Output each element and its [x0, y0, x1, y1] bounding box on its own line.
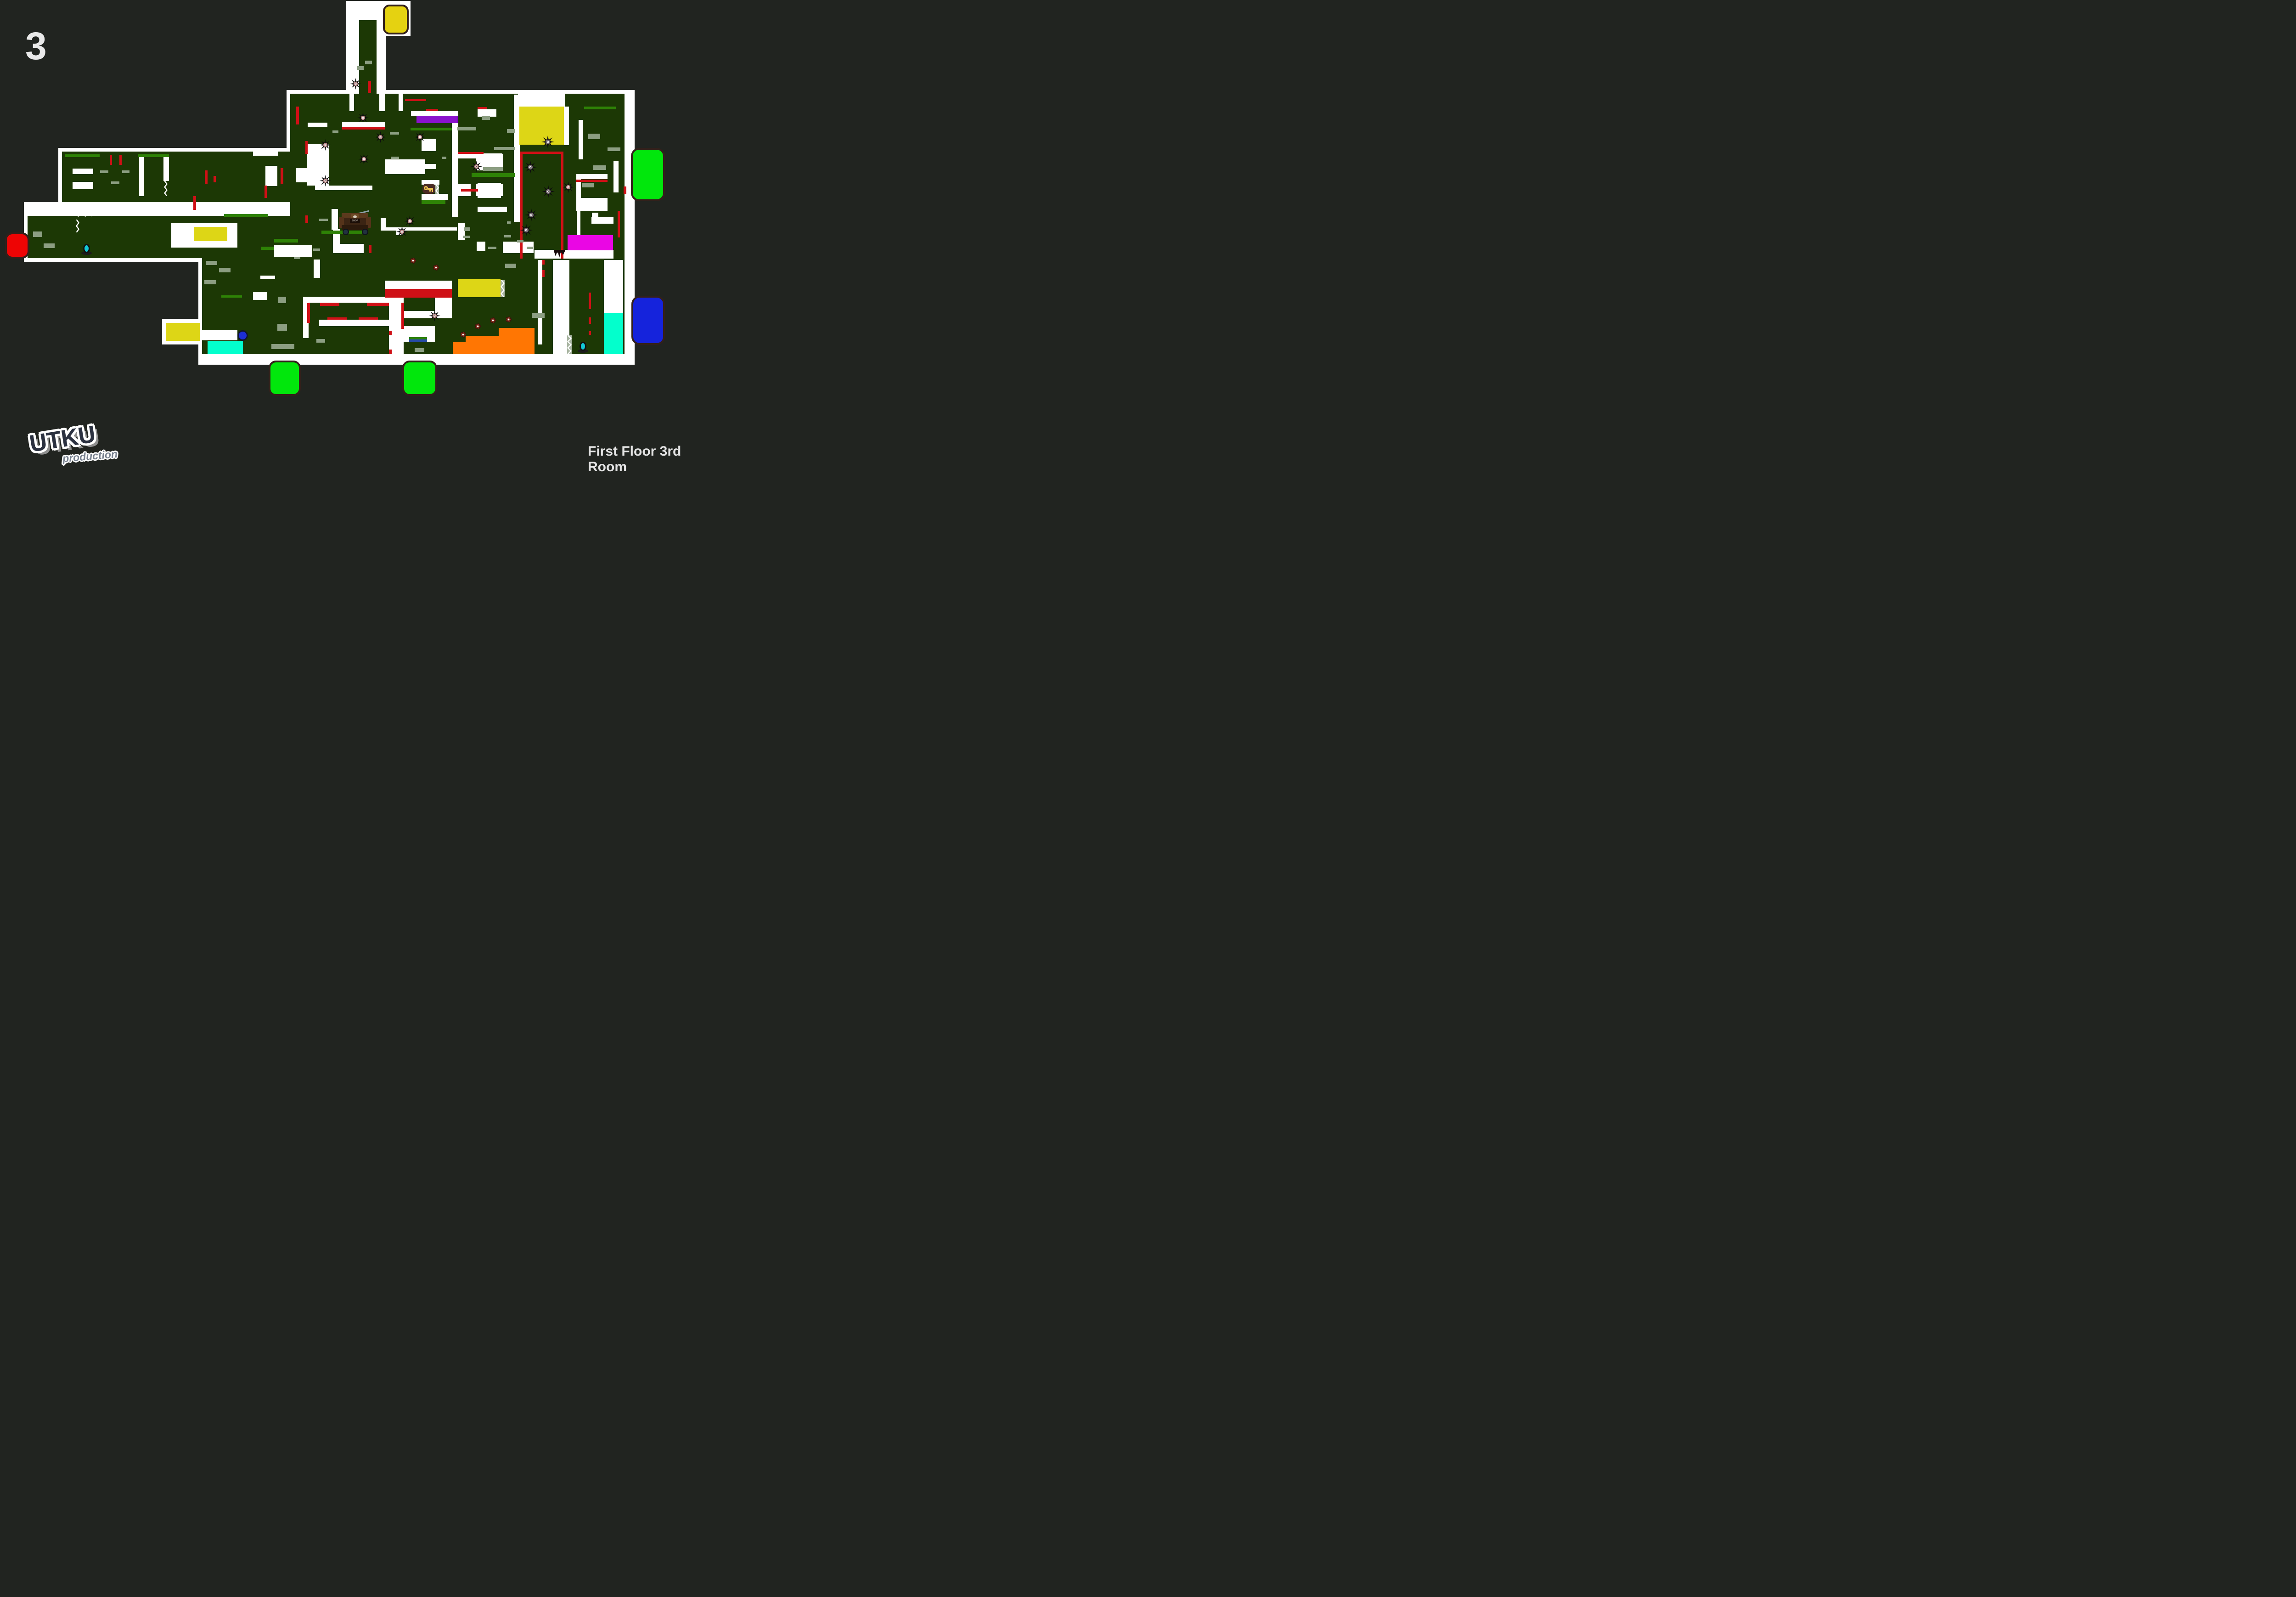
- hazard-mark: [193, 196, 196, 210]
- platform-dash: [504, 235, 511, 237]
- corridor-gap: [73, 169, 93, 174]
- splat-enemy-icon: [474, 323, 481, 330]
- hazard-mark: [205, 170, 208, 184]
- platform-dash: [111, 181, 119, 184]
- hazard-mark: [389, 350, 392, 354]
- hazard-mark: [520, 152, 563, 154]
- zigzag-spring-icon: [75, 211, 92, 215]
- platform-dash: [582, 183, 594, 187]
- grass-strip: [274, 239, 298, 243]
- corridor-gap: [576, 198, 608, 211]
- platform-dash: [517, 240, 523, 243]
- zigzag-spring-icon: [164, 181, 168, 196]
- hazard-mark: [542, 270, 545, 277]
- hazard-mark: [589, 317, 591, 324]
- corridor-gap: [435, 297, 452, 311]
- splat-enemy-icon: [410, 257, 416, 264]
- platform-dash: [442, 157, 446, 159]
- spike-enemy-pink-icon: [319, 139, 332, 151]
- screenshot-canvas: 3 SHOP UTKU production First Floor 3rd R…: [0, 0, 720, 489]
- door-red-left: [5, 232, 29, 259]
- platform-dash: [588, 134, 600, 139]
- platform-dash: [122, 170, 129, 173]
- hazard-mark: [305, 215, 308, 223]
- corridor-gap: [478, 207, 507, 212]
- corridor-gap: [399, 93, 403, 111]
- door-yellow-top: [383, 5, 409, 34]
- corridor-gap: [613, 161, 619, 192]
- hazard-mark: [401, 303, 404, 329]
- platform-dash: [507, 129, 515, 133]
- spike-enemy-pink-icon: [358, 153, 370, 165]
- platform-dash: [608, 147, 620, 151]
- corridor-gap: [535, 250, 613, 259]
- platform-dash: [593, 165, 606, 170]
- shop-sign-label: SHOP: [350, 219, 360, 223]
- platform-dash: [204, 280, 216, 284]
- magenta-pad: [568, 235, 613, 250]
- zigzag-spring-icon: [501, 280, 505, 297]
- corridor-gap: [576, 179, 581, 198]
- corridor-gap: [139, 155, 144, 196]
- corridor-gap: [314, 260, 320, 278]
- spike-enemy-gray-icon: [519, 223, 533, 237]
- grass-strip: [221, 295, 242, 298]
- yellow-pad-mid-right: [458, 279, 501, 297]
- hazard-mark: [458, 152, 484, 154]
- hazard-mark: [305, 141, 308, 154]
- platform-dash: [316, 339, 325, 343]
- grass-strip: [472, 173, 515, 177]
- studio-logo: UTKU production: [27, 422, 128, 477]
- grass-strip: [138, 154, 169, 157]
- hazard-mark: [576, 180, 608, 182]
- corridor-gap: [379, 93, 385, 111]
- hazard-mark: [385, 289, 452, 298]
- hazard-mark: [367, 303, 389, 306]
- splat-enemy-icon: [460, 331, 467, 338]
- corridor-gap: [319, 320, 389, 326]
- shop-stall-sprite: SHOP: [339, 213, 371, 232]
- platform-dash: [488, 247, 496, 249]
- purple-pad: [416, 116, 458, 123]
- spike-enemy-pink-icon: [414, 131, 426, 143]
- hazard-mark: [327, 317, 347, 320]
- hazard-mark: [359, 317, 378, 320]
- blue-orb-icon: [237, 330, 248, 341]
- splat-enemy-icon: [490, 317, 496, 324]
- platform-dash: [44, 243, 55, 248]
- hazard-mark: [426, 109, 438, 111]
- hazard-mark: [389, 331, 392, 335]
- platform-dash: [332, 130, 338, 133]
- platform-dash: [319, 219, 328, 221]
- level-map: SHOP: [0, 0, 720, 489]
- platform-dash: [505, 264, 516, 268]
- spike-enemy-pink-icon: [562, 181, 574, 193]
- corridor-gap: [478, 183, 501, 198]
- platform-dash: [457, 127, 476, 130]
- hazard-mark: [589, 293, 591, 309]
- corridor-gap: [308, 123, 327, 127]
- spike-enemy-pink-icon: [374, 131, 387, 143]
- corridor-gap: [253, 152, 278, 156]
- hazard-mark: [618, 211, 620, 237]
- platform-dash: [494, 147, 515, 150]
- corridor-gap: [265, 166, 277, 186]
- platform-dash: [294, 257, 300, 259]
- platform-dash: [219, 268, 231, 272]
- hazard-mark: [320, 303, 339, 306]
- platform-dash: [415, 348, 424, 352]
- corridor-gap: [411, 111, 458, 116]
- spike-enemy-gray-icon: [541, 135, 555, 149]
- corridor-gap: [309, 297, 389, 303]
- hazard-mark: [214, 176, 216, 182]
- platform-dash: [507, 221, 511, 224]
- hazard-mark: [342, 127, 385, 130]
- hazard-mark: [281, 168, 283, 184]
- platform-dash: [33, 231, 42, 237]
- hazard-mark: [478, 107, 487, 109]
- corridor-gap: [296, 168, 309, 182]
- corridor-gap: [385, 159, 425, 174]
- platform-dash: [277, 324, 287, 331]
- zigzag-spring-icon: [435, 185, 439, 194]
- corridor-gap: [260, 276, 275, 279]
- corridor-gap: [200, 330, 237, 340]
- orange-stairs-step2: [466, 336, 499, 354]
- yellow-pad-mid-left: [194, 227, 227, 241]
- corridor-gap: [591, 217, 613, 224]
- hazard-mark: [296, 107, 299, 124]
- door-green-bottom-mid: [402, 361, 437, 396]
- door-green-bottom-left: [269, 361, 301, 396]
- door-green-right: [631, 148, 665, 201]
- zigzag-spring-icon: [76, 220, 79, 232]
- platform-dash: [532, 313, 545, 318]
- corridor-gap: [274, 245, 312, 257]
- hazard-mark: [589, 331, 591, 335]
- platform-dash: [365, 61, 372, 64]
- spike-enemy-pink-icon: [428, 310, 441, 322]
- corridor-gap: [518, 94, 565, 107]
- door-blue-right: [631, 296, 665, 345]
- splat-enemy-icon: [505, 316, 512, 323]
- hazard-mark: [110, 155, 112, 165]
- key-item-icon: [422, 184, 435, 194]
- platform-dash: [482, 116, 490, 120]
- yellow-pad-bottom-left: [166, 323, 200, 341]
- corridor-gap: [385, 281, 452, 289]
- corridor-gap: [333, 244, 364, 253]
- corridor-gap: [349, 93, 354, 111]
- hazard-mark: [369, 245, 371, 253]
- platform-dash: [390, 132, 399, 135]
- grass-strip: [584, 107, 616, 109]
- checkpoint-egg-icon: [83, 244, 90, 253]
- corridor-gap: [592, 213, 598, 217]
- corridor-gap: [576, 174, 608, 179]
- corridor-gap: [477, 242, 485, 251]
- blue-mini-platform: [409, 339, 427, 342]
- corridor-gap: [579, 120, 583, 159]
- corridor-gap: [478, 153, 502, 158]
- terrain-block: [28, 216, 290, 258]
- grass-strip: [422, 200, 445, 204]
- platform-dash: [100, 170, 108, 173]
- spike-enemy-pink-icon: [319, 175, 332, 187]
- hazard-mark: [119, 155, 122, 165]
- spike-enemy-pink-icon: [357, 112, 369, 124]
- grass-strip: [261, 247, 274, 250]
- map-caption: First Floor 3rd Room: [588, 444, 720, 475]
- hazard-mark: [368, 81, 371, 93]
- spike-enemy-gray-icon: [541, 185, 555, 198]
- grass-strip: [224, 214, 268, 217]
- hazard-mark: [520, 154, 523, 259]
- platform-dash: [271, 344, 294, 349]
- platform-dash: [357, 66, 364, 70]
- platform-dash: [391, 157, 399, 159]
- dark-drip-icon: [554, 250, 565, 257]
- corridor-gap: [163, 155, 169, 181]
- spike-enemy-pink-icon: [470, 160, 483, 173]
- platform-dash: [278, 297, 286, 303]
- zigzag-spring-icon: [567, 335, 572, 354]
- hazard-mark: [264, 186, 267, 198]
- grass-strip: [65, 154, 100, 157]
- checkpoint-egg-icon: [580, 342, 586, 351]
- corridor-gap: [564, 107, 569, 145]
- corridor-gap: [422, 164, 436, 169]
- hazard-mark: [405, 99, 426, 101]
- platform-dash: [463, 236, 470, 238]
- platform-dash: [483, 167, 503, 171]
- hazard-mark: [624, 186, 626, 194]
- splat-enemy-icon: [433, 264, 439, 271]
- corridor-gap: [538, 260, 542, 344]
- cyan-pool-bottom-left: [208, 341, 243, 354]
- orange-stairs-step3: [499, 328, 535, 354]
- hazard-mark: [561, 154, 563, 259]
- corridor-gap: [604, 260, 623, 313]
- spike-enemy-gray-icon: [524, 208, 538, 222]
- hazard-mark: [307, 303, 310, 323]
- platform-dash: [527, 247, 533, 249]
- platform-dash: [464, 227, 470, 231]
- platform-dash: [313, 248, 320, 251]
- corridor-gap: [332, 209, 338, 230]
- hazard-mark: [542, 260, 545, 265]
- spike-enemy-pink-icon: [396, 226, 408, 238]
- corridor-gap: [404, 311, 452, 318]
- corridor-gap: [73, 182, 93, 189]
- corridor-gap: [478, 109, 496, 117]
- corridor-gap: [422, 194, 448, 200]
- corridor-gap: [381, 218, 386, 227]
- terrain-block: [62, 152, 290, 202]
- platform-dash: [206, 261, 217, 265]
- hazard-mark: [461, 189, 478, 192]
- grass-strip: [411, 128, 452, 130]
- cyan-pool-bottom-right: [604, 313, 623, 354]
- spike-enemy-gray-icon: [523, 160, 537, 174]
- corridor-gap: [253, 292, 267, 300]
- orange-stairs-step1: [453, 342, 466, 354]
- spike-enemy-pink-icon: [349, 78, 362, 90]
- zigzag-spring-icon: [228, 227, 231, 241]
- corridor-gap: [381, 227, 457, 231]
